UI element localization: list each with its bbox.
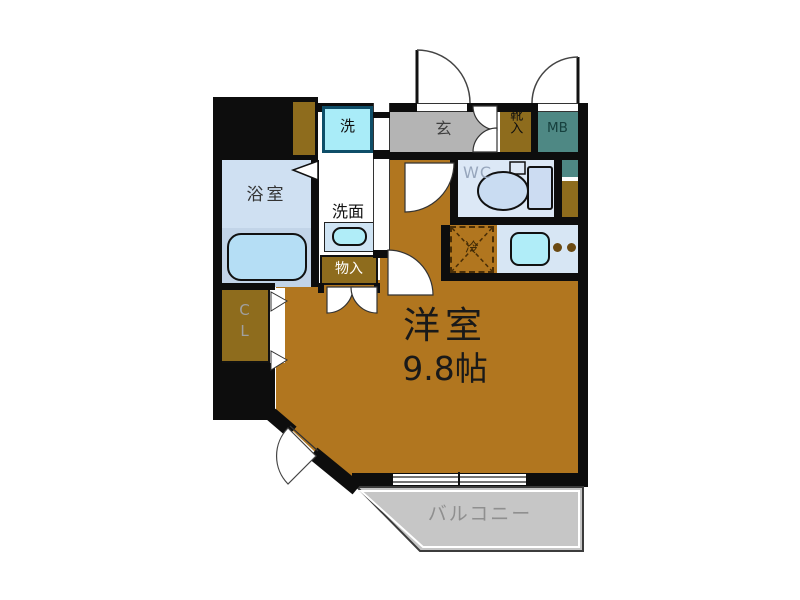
wall-kitchen-bottom (441, 273, 588, 281)
toilet-label: WC (463, 164, 492, 182)
partition-chunk-1 (373, 112, 390, 118)
main-room-size-label: 9.8帖 (340, 351, 550, 387)
balcony-label: バルコニー (390, 504, 570, 525)
duct-brown (562, 181, 578, 217)
wall-closet-top (213, 283, 275, 290)
washbasin-bowl (332, 227, 367, 246)
meter-box-label: MB (537, 121, 578, 136)
wall-meter-bottom (534, 152, 588, 160)
entrance-door-sill (417, 103, 467, 112)
wall-left (213, 97, 222, 363)
entrance-door-icon (417, 50, 470, 103)
partition-washroom-hall (373, 103, 390, 257)
wall-kitchen-top (450, 217, 588, 225)
bathroom-label: 浴室 (222, 186, 311, 205)
meter-box-door-icon (532, 57, 578, 103)
wall-right (578, 103, 588, 487)
closet-door-strip (270, 288, 285, 363)
floorplan: 浴室 洗 洗面 物入 玄 靴入 MB WC 冷 CL 洋室 9.8帖 バルコニー (0, 0, 800, 600)
main-room-label: 洋室 (340, 306, 550, 347)
closet-label: CL (236, 301, 253, 343)
wall-bath-divider (311, 160, 319, 287)
partition-chunk-2 (373, 150, 390, 159)
wall-top-c (467, 103, 537, 112)
wall-entrance-bottom (388, 152, 534, 160)
stove-burner-1 (553, 243, 562, 252)
wall-storage-jamb-right (374, 283, 380, 293)
washbasin-label: 洗面 (318, 203, 378, 221)
bathtub (227, 233, 307, 281)
shoe-storage-label: 靴入 (507, 108, 521, 134)
washing-machine-label: 洗 (322, 118, 373, 135)
wall-wc-right (554, 160, 562, 217)
wall-bottom (352, 473, 588, 487)
kitchen-sink (510, 232, 550, 266)
pipe-shaft-brown (293, 102, 315, 155)
duct-teal (562, 160, 578, 177)
partition-chunk-3 (373, 250, 390, 258)
stove-burner-2 (567, 243, 576, 252)
entrance-label: 玄 (390, 120, 497, 138)
refrigerator-label: 冷 (450, 241, 494, 256)
wall-wc-left (450, 152, 458, 225)
meter-door-sill (537, 103, 578, 112)
wall-block-bottom-left (213, 363, 275, 420)
wall-storage-jamb-left (318, 283, 324, 293)
wall-top-b (390, 103, 417, 112)
storage-label: 物入 (320, 262, 378, 277)
